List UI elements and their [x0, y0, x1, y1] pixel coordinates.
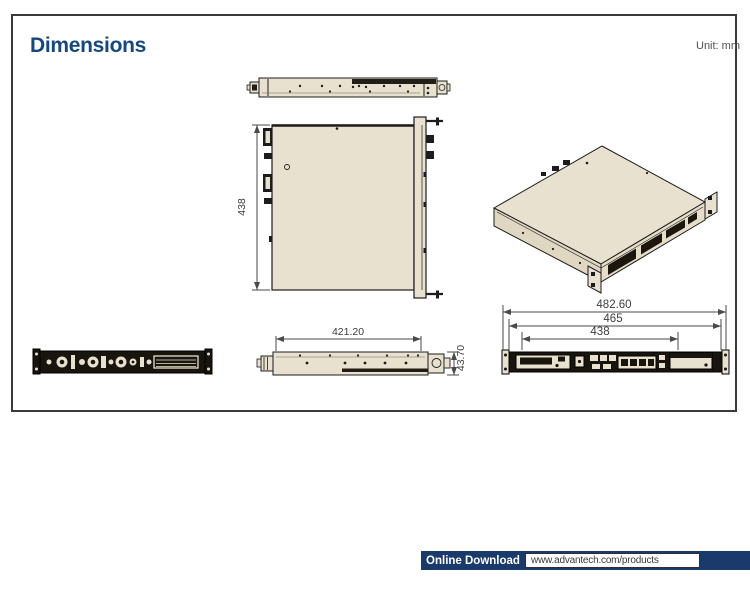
rear-view-drawing — [502, 350, 729, 374]
footer-bar: Online Download www.advantech.com/produc… — [421, 551, 750, 570]
datasheet-page: Dimensions Unit: mm — [0, 0, 750, 591]
dim-438-depth: 438 — [236, 198, 248, 216]
top-view-depth-dimension: 438 — [236, 125, 270, 290]
dim-438-width: 438 — [590, 326, 609, 338]
download-url: www.advantech.com/products — [525, 553, 700, 568]
rear-view-dimensions: 482.60 465 438 — [503, 299, 726, 350]
dimension-drawings: 438 — [0, 0, 750, 591]
dim-465: 465 — [603, 313, 622, 325]
side-view-length-dimension: 421.20 — [276, 326, 421, 351]
dim-421-20: 421.20 — [332, 326, 364, 338]
side-view-drawing — [257, 352, 450, 375]
iso-view-drawing — [494, 146, 717, 293]
dim-482-60: 482.60 — [596, 299, 631, 311]
top-view-drawing — [263, 117, 443, 299]
dim-43-70: 43.70 — [455, 345, 467, 371]
rail-top-strip-view — [247, 78, 450, 97]
front-view-drawing — [33, 349, 212, 374]
online-download-label: Online Download — [421, 555, 525, 567]
